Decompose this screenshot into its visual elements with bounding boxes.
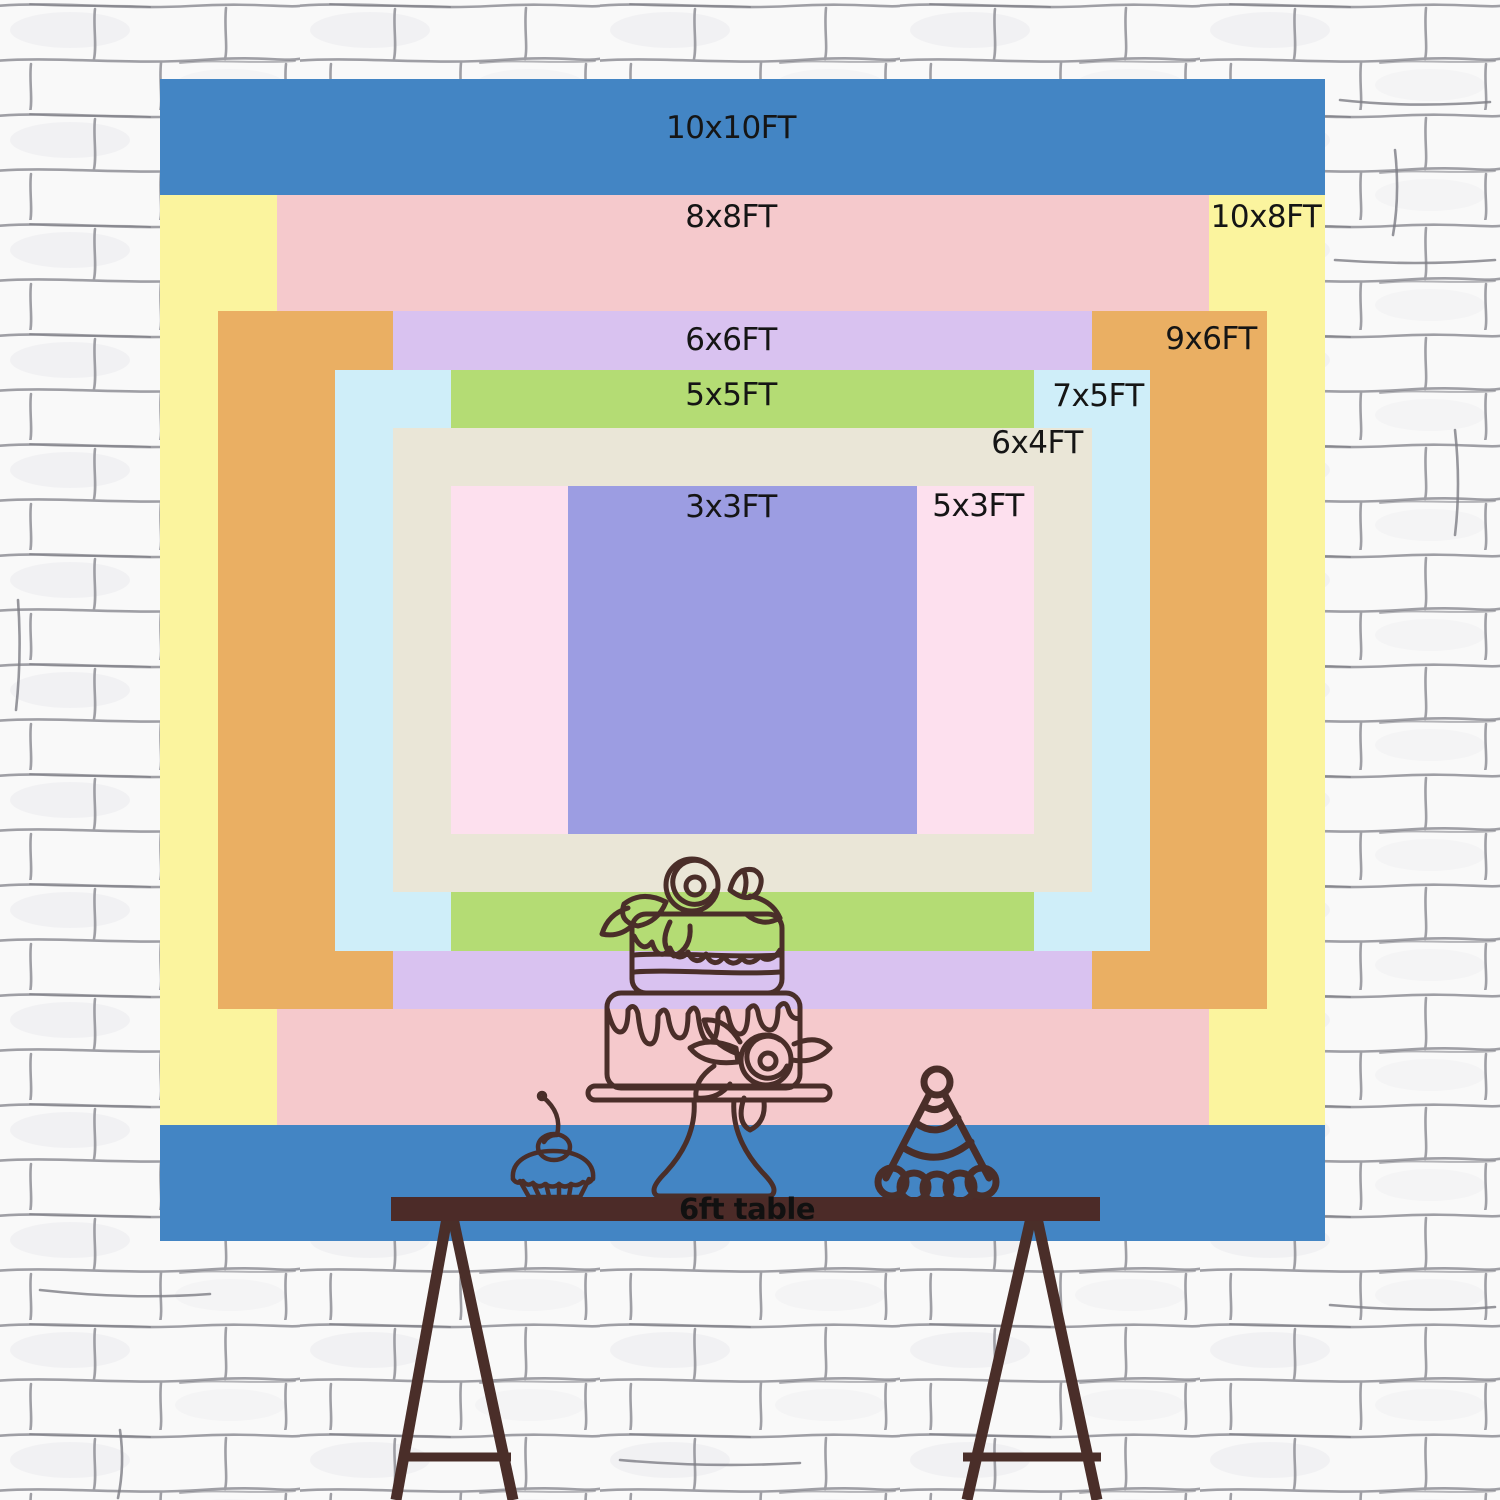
- size-label-10x10ft: 10x10FT: [666, 110, 796, 146]
- size-rect-3x3ft: [568, 486, 918, 835]
- product-image: 10x10FT10x8FT8x8FT9x6FT6x6FT7x5FT5x5FT6x…: [0, 0, 1500, 1500]
- size-label-6x6ft: 6x6FT: [685, 322, 777, 358]
- size-label-6x4ft: 6x4FT: [991, 425, 1083, 461]
- size-label-7x5ft: 7x5FT: [1052, 378, 1144, 414]
- size-label-8x8ft: 8x8FT: [685, 199, 777, 235]
- size-label-9x6ft: 9x6FT: [1165, 321, 1257, 357]
- table-size-label: 6ft table: [679, 1192, 815, 1226]
- backdrop-size-chart: 10x10FT10x8FT8x8FT9x6FT6x6FT7x5FT5x5FT6x…: [160, 79, 1325, 1241]
- size-label-5x5ft: 5x5FT: [685, 377, 777, 413]
- size-label-5x3ft: 5x3FT: [932, 488, 1024, 524]
- size-label-3x3ft: 3x3FT: [685, 489, 777, 525]
- size-label-10x8ft: 10x8FT: [1211, 199, 1322, 235]
